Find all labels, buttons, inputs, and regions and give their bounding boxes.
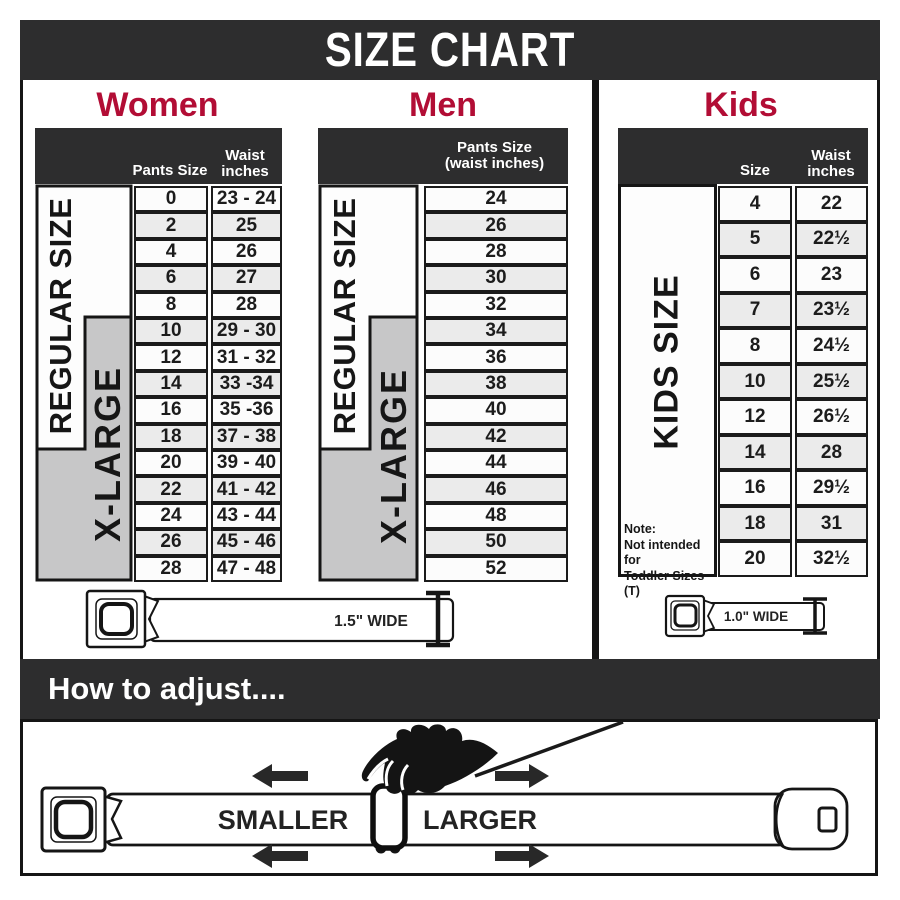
size-cell: 6: [134, 265, 208, 291]
size-cell: 34: [424, 318, 568, 344]
size-cell: 45 - 46: [211, 529, 282, 555]
size-cell: 32½: [795, 541, 868, 577]
kids-table-header: Size Waist inches: [618, 128, 868, 184]
size-cell: 26: [424, 212, 568, 238]
kids-col-header-waist: Waist inches: [794, 148, 868, 180]
size-cell: 36: [424, 344, 568, 370]
size-cell: 48: [424, 503, 568, 529]
size-cell: 14: [718, 435, 792, 471]
size-cell: 10: [134, 318, 208, 344]
belt-slider: [373, 786, 405, 848]
size-cell: 26½: [795, 399, 868, 435]
size-cell: 23: [795, 257, 868, 293]
size-cell: 8: [134, 292, 208, 318]
women-title: Women: [60, 86, 255, 125]
kids-waist-col: 2222½2323½24½25½26½2829½3132½: [795, 186, 868, 577]
size-cell: 18: [134, 424, 208, 450]
size-cell: 12: [134, 344, 208, 370]
size-cell: 16: [134, 397, 208, 423]
size-cell: 39 - 40: [211, 450, 282, 476]
size-cell: 43 - 44: [211, 503, 282, 529]
size-cell: 38: [424, 371, 568, 397]
title-band: SIZE CHART: [20, 20, 880, 80]
size-cell: 35 -36: [211, 397, 282, 423]
kids-col-header-size: Size: [718, 163, 792, 179]
size-cell: 24: [134, 503, 208, 529]
arrow-left-lower: [252, 844, 308, 868]
size-cell: 7: [718, 293, 792, 329]
callout-line: [475, 722, 623, 776]
size-cell: 4: [134, 239, 208, 265]
size-cell: 25½: [795, 364, 868, 400]
size-cell: 2: [134, 212, 208, 238]
arrow-left-upper: [252, 764, 308, 788]
size-cell: 32: [424, 292, 568, 318]
size-chart-page: SIZE CHART Women Men Kids Pants Size Wai…: [0, 0, 900, 900]
size-cell: 31 - 32: [211, 344, 282, 370]
size-cell: 41 - 42: [211, 476, 282, 502]
men-col-header: Pants Size (waist inches): [421, 140, 568, 172]
size-cell: 28: [795, 435, 868, 471]
kids-belt-illustration: 1.0" WIDE: [640, 583, 880, 643]
size-cell: 27: [211, 265, 282, 291]
size-cell: 26: [211, 239, 282, 265]
adult-belt-width-label: 1.5" WIDE: [334, 613, 408, 630]
men-title: Men: [348, 86, 538, 125]
size-cell: 37 - 38: [211, 424, 282, 450]
women-col-header-waist: Waist inches: [208, 148, 282, 180]
size-cell: 42: [424, 424, 568, 450]
size-cell: 28: [424, 239, 568, 265]
adult-belt-illustration: 1.5" WIDE: [60, 578, 480, 656]
size-cell: 23 - 24: [211, 186, 282, 212]
kids-size-label: KIDS SIZE: [648, 274, 687, 449]
buckle-hole: [56, 802, 91, 837]
kids-title: Kids: [646, 86, 836, 125]
size-cell: 29½: [795, 470, 868, 506]
women-size-table: Pants Size Waist inches REGULAR SIZE X-L…: [35, 128, 282, 582]
size-cell: 22: [795, 186, 868, 222]
men-size-table: Pants Size (waist inches) REGULAR SIZE X…: [318, 128, 568, 582]
size-cell: 24: [424, 186, 568, 212]
size-cell: 30: [424, 265, 568, 291]
size-cell: 14: [134, 371, 208, 397]
kids-size-col: 45678101214161820: [718, 186, 792, 577]
adult-buckle-hole: [101, 604, 132, 634]
men-size-col: 242628303234363840424446485052: [424, 186, 568, 582]
size-cell: 29 - 30: [211, 318, 282, 344]
adjust-belt-illustration: SMALLER LARGER: [23, 722, 875, 873]
size-cell: 5: [718, 222, 792, 258]
size-cell: 33 -34: [211, 371, 282, 397]
women-waist-col: 23 - 242526272829 - 3031 - 3233 -3435 -3…: [211, 186, 282, 582]
size-cell: 8: [718, 328, 792, 364]
size-cell: 16: [718, 470, 792, 506]
size-cell: 25: [211, 212, 282, 238]
panel-divider: [592, 80, 599, 659]
smaller-label: SMALLER: [218, 805, 349, 835]
size-cell: 24½: [795, 328, 868, 364]
women-table-header: Pants Size Waist inches: [35, 128, 282, 184]
belt-tip-hole: [819, 808, 836, 831]
size-cell: 0: [134, 186, 208, 212]
men-regular-size-label: REGULAR SIZE: [327, 198, 363, 435]
size-cell: 28: [211, 292, 282, 318]
size-cell: 18: [718, 506, 792, 542]
size-cell: 44: [424, 450, 568, 476]
page-title: SIZE CHART: [325, 23, 575, 78]
size-cell: 26: [134, 529, 208, 555]
size-cell: 22: [134, 476, 208, 502]
kids-belt-width-label: 1.0" WIDE: [724, 609, 788, 624]
adjust-panel: SMALLER LARGER: [20, 719, 878, 876]
women-col-header-pants: Pants Size: [132, 163, 208, 179]
adjust-band: How to adjust....: [20, 659, 880, 719]
kids-size-table: Size Waist inches KIDS SIZE Note: Not in…: [618, 128, 868, 577]
size-cell: 10: [718, 364, 792, 400]
size-cell: 23½: [795, 293, 868, 329]
size-cell: 50: [424, 529, 568, 555]
size-cell: 12: [718, 399, 792, 435]
size-cell: 20: [718, 541, 792, 577]
women-regular-size-label: REGULAR SIZE: [43, 198, 79, 435]
larger-label: LARGER: [423, 805, 537, 835]
kids-buckle-hole: [675, 605, 696, 626]
men-table-header: Pants Size (waist inches): [318, 128, 568, 184]
women-xlarge-label: X-LARGE: [87, 366, 129, 542]
size-cell: 40: [424, 397, 568, 423]
size-cell: 46: [424, 476, 568, 502]
size-cell: 4: [718, 186, 792, 222]
arrow-right-lower: [495, 844, 549, 868]
adjust-heading: How to adjust....: [20, 671, 286, 707]
women-pants-col: 0246810121416182022242628: [134, 186, 208, 582]
men-xlarge-label: X-LARGE: [373, 368, 415, 544]
size-cell: 20: [134, 450, 208, 476]
size-cell: 31: [795, 506, 868, 542]
size-cell: 22½: [795, 222, 868, 258]
size-cell: 6: [718, 257, 792, 293]
